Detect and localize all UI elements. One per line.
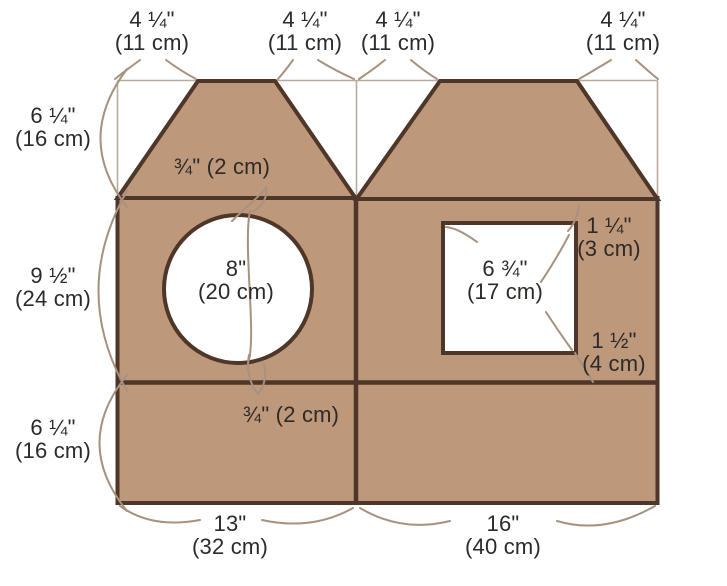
- dim-cm: (16 cm): [15, 127, 91, 150]
- dim-inches: 4 ¼": [268, 8, 342, 31]
- left-roof-flap: [118, 81, 356, 198]
- dim-cm: (32 cm): [192, 535, 268, 558]
- dim-inches: 6 ¼": [15, 416, 91, 439]
- dim-window-top-offset: 1 ¼" (3 cm): [577, 214, 641, 260]
- tick: [411, 60, 437, 79]
- dim-top-0: 4 ¼" (11 cm): [115, 8, 189, 54]
- right-roof-flap: [357, 81, 658, 199]
- dim-top-1: 4 ¼" (11 cm): [268, 8, 342, 54]
- dim-left-roof: 6 ¼" (16 cm): [15, 104, 91, 150]
- brace-left-panel-b: [262, 508, 353, 524]
- tick: [359, 60, 385, 79]
- brace-right-panel-b: [557, 506, 655, 526]
- brace-right-panel-a: [360, 508, 450, 525]
- house-template-drawing: [0, 0, 727, 586]
- dim-top-2: 4 ¼" (11 cm): [361, 8, 435, 54]
- top-dimension-ticks: [115, 60, 658, 79]
- dim-square-size: 6 ¾" (17 cm): [467, 257, 543, 303]
- dim-roof-fold: ¾" (2 cm): [174, 155, 270, 178]
- dim-window-bottom-offset: 1 ½" (4 cm): [582, 329, 646, 375]
- dim-cm: (20 cm): [198, 280, 274, 303]
- dim-inches: 8": [198, 257, 274, 280]
- tick: [579, 60, 611, 79]
- tick: [278, 60, 293, 79]
- dim-cm: (11 cm): [361, 31, 435, 54]
- dim-inches: 6 ¼": [15, 104, 91, 127]
- dim-base-fold: ¾" (2 cm): [243, 403, 339, 426]
- tick: [318, 60, 354, 79]
- dim-bottom-right-width: 16" (40 cm): [465, 512, 541, 558]
- brace-left-panel-a: [120, 506, 200, 523]
- dim-inches: 13": [192, 512, 268, 535]
- dim-inches: 1 ¼": [577, 214, 641, 237]
- dim-left-base: 6 ¼" (16 cm): [15, 416, 91, 462]
- dim-inches: 16": [465, 512, 541, 535]
- dim-cm: (17 cm): [467, 280, 543, 303]
- tick: [166, 60, 196, 79]
- dim-inches: 9 ½": [15, 264, 91, 287]
- dim-inches: 4 ¼": [115, 8, 189, 31]
- dim-top-3: 4 ¼" (11 cm): [586, 8, 660, 54]
- dim-inches: 6 ¾": [467, 257, 543, 280]
- dim-cm: (16 cm): [15, 439, 91, 462]
- dim-combined: ¾" (2 cm): [174, 155, 270, 178]
- dim-cm: (24 cm): [15, 287, 91, 310]
- dim-inches: 4 ¼": [586, 8, 660, 31]
- tick: [636, 60, 658, 79]
- dim-cm: (3 cm): [577, 237, 641, 260]
- dim-bottom-left-width: 13" (32 cm): [192, 512, 268, 558]
- dim-cm: (11 cm): [115, 31, 189, 54]
- dim-circle-diameter: 8" (20 cm): [198, 257, 274, 303]
- dim-combined: ¾" (2 cm): [243, 403, 339, 426]
- dim-inches: 1 ½": [582, 329, 646, 352]
- dim-cm: (11 cm): [268, 31, 342, 54]
- bracket-roof-height: [101, 69, 128, 207]
- dim-inches: 4 ¼": [361, 8, 435, 31]
- dim-cm: (4 cm): [582, 352, 646, 375]
- pattern-diagram: 4 ¼" (11 cm) 4 ¼" (11 cm) 4 ¼" (11 cm) 4…: [0, 0, 727, 586]
- dim-left-wall: 9 ½" (24 cm): [15, 264, 91, 310]
- dim-cm: (40 cm): [465, 535, 541, 558]
- dim-cm: (11 cm): [586, 31, 660, 54]
